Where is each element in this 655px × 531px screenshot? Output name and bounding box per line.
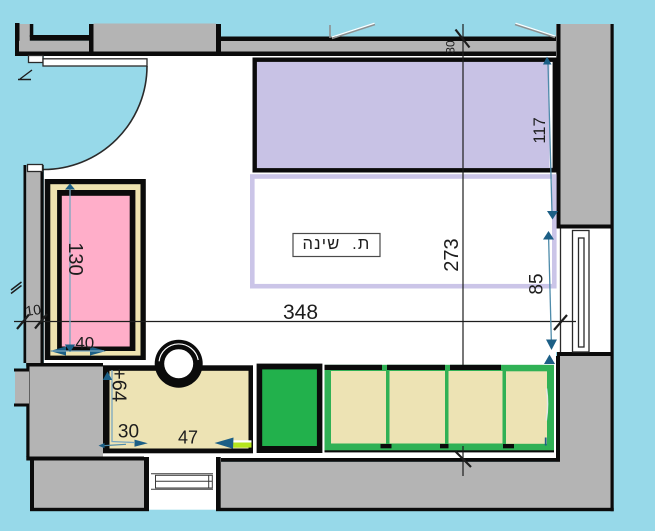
svg-text:30: 30 <box>444 40 458 54</box>
svg-text:40: 40 <box>75 334 94 353</box>
svg-text:117: 117 <box>531 117 549 143</box>
svg-text:130: 130 <box>64 242 86 275</box>
svg-text:+64: +64 <box>108 368 130 402</box>
svg-text:85: 85 <box>527 273 548 294</box>
svg-text:47: 47 <box>178 428 198 448</box>
svg-text:273: 273 <box>441 238 463 271</box>
svg-text:10: 10 <box>24 301 42 319</box>
svg-text:ת. שינה: ת. שינה <box>303 235 371 253</box>
svg-text:30: 30 <box>118 422 139 443</box>
svg-text:348: 348 <box>283 301 318 324</box>
